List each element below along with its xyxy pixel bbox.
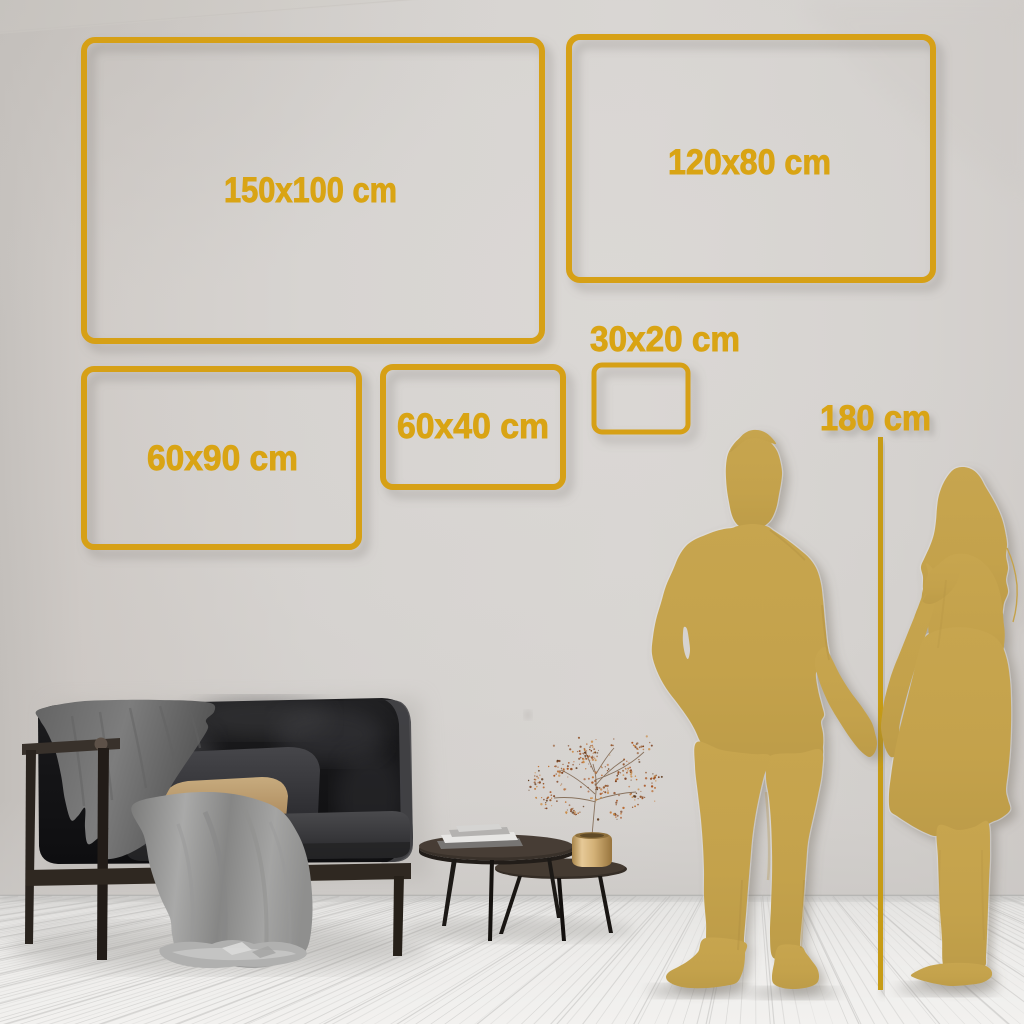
svg-text:180 cm: 180 cm (820, 399, 931, 438)
svg-text:150x100 cm: 150x100 cm (224, 171, 397, 210)
svg-text:60x40 cm: 60x40 cm (397, 407, 549, 446)
svg-text:30x20 cm: 30x20 cm (590, 320, 740, 359)
svg-text:60x90 cm: 60x90 cm (147, 439, 298, 478)
svg-text:120x80 cm: 120x80 cm (668, 143, 831, 182)
